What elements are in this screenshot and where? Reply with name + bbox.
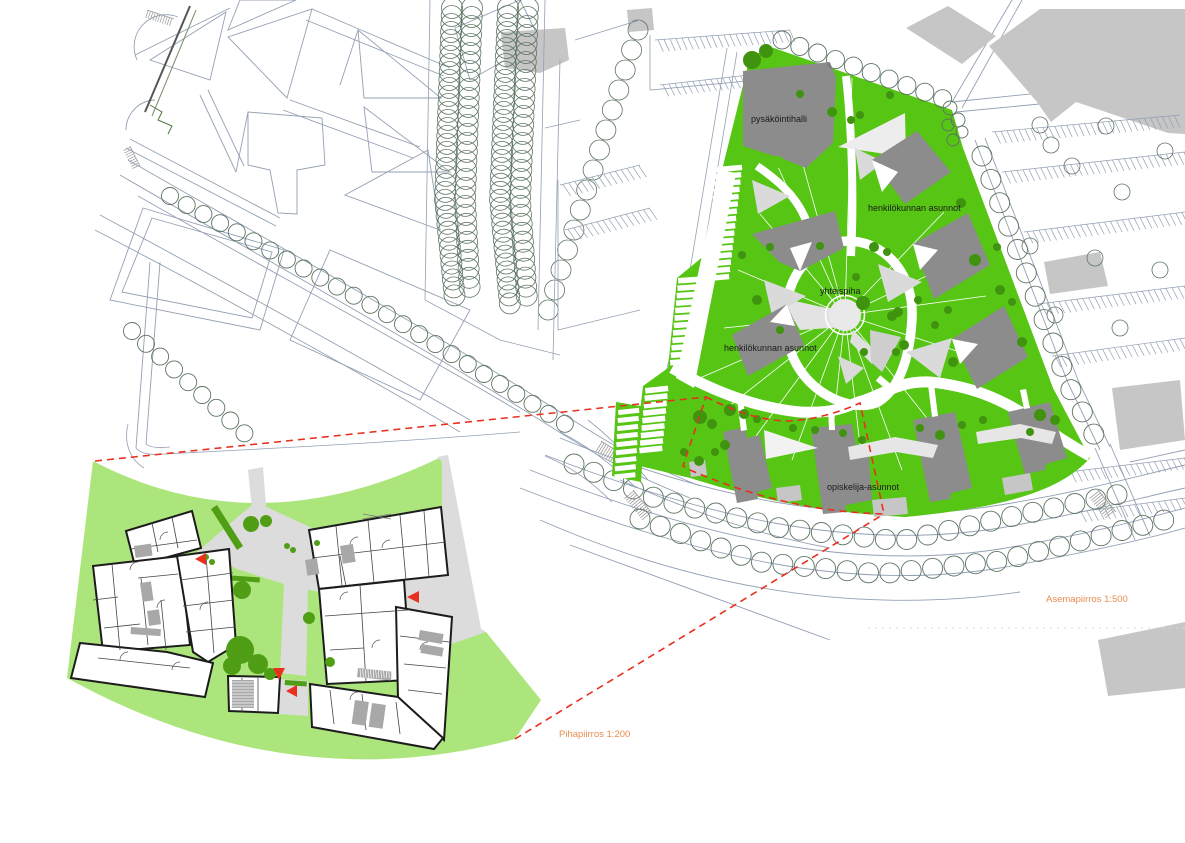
svg-text:Pihapiirros 1:200: Pihapiirros 1:200 — [559, 729, 630, 740]
svg-text:henkilökunnan asunnot: henkilökunnan asunnot — [724, 343, 817, 353]
svg-text:henkilökunnan asunnot: henkilökunnan asunnot — [868, 203, 961, 213]
svg-text:pysäköintihalli: pysäköintihalli — [751, 114, 807, 124]
svg-text:yhteispiha: yhteispiha — [820, 286, 861, 296]
svg-text:Asemapiirros 1:500: Asemapiirros 1:500 — [1046, 594, 1128, 605]
svg-text:opiskelija-asunnot: opiskelija-asunnot — [827, 482, 900, 492]
